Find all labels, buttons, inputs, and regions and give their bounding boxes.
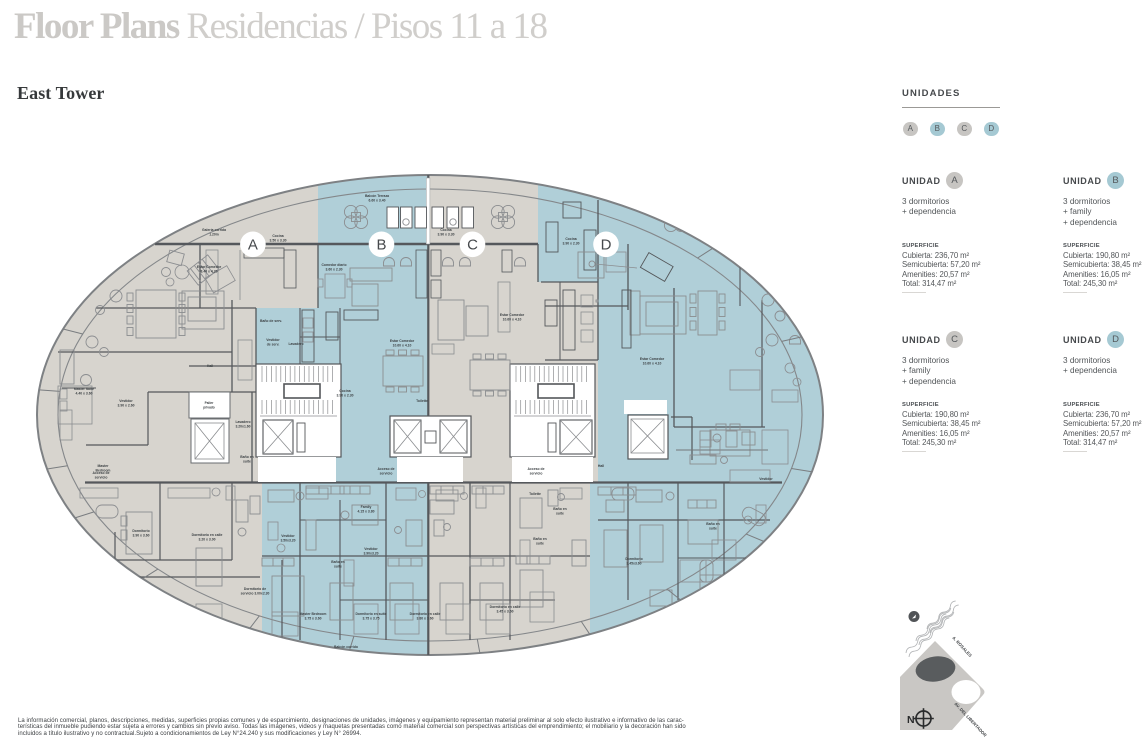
svg-text:Family: Family (361, 505, 372, 509)
svg-text:Baño en: Baño en (240, 455, 253, 459)
svg-text:10.60 x 4.10: 10.60 x 4.10 (643, 362, 662, 366)
svg-text:Baño en: Baño en (533, 537, 546, 541)
svg-text:servicio 3.00x2.30: servicio 3.00x2.30 (241, 592, 270, 596)
svg-text:3.20 x 3.00: 3.20 x 3.00 (199, 538, 216, 542)
svg-text:Galería corrida: Galería corrida (202, 228, 226, 232)
svg-text:de serv.: de serv. (267, 343, 280, 347)
svg-text:Vestidor: Vestidor (281, 534, 295, 538)
svg-text:3.90 x 3.30: 3.90 x 3.30 (438, 233, 455, 237)
svg-text:Toilette: Toilette (416, 399, 428, 403)
svg-text:Dormitorio: Dormitorio (132, 529, 149, 533)
svg-text:1.20m: 1.20m (209, 233, 219, 237)
svg-text:3.90 x 3.60: 3.90 x 3.60 (133, 534, 150, 538)
svg-text:Dormitorio: Dormitorio (625, 557, 642, 561)
svg-text:N: N (907, 714, 915, 726)
svg-text:D: D (601, 237, 612, 254)
svg-text:servicio: servicio (530, 472, 543, 476)
svg-text:Baño en: Baño en (331, 560, 344, 564)
svg-text:8.40 x 4.20: 8.40 x 4.20 (201, 270, 218, 274)
svg-text:Master: Master (98, 464, 110, 468)
svg-text:3.45 x 3.60: 3.45 x 3.60 (497, 610, 514, 614)
svg-text:A: A (248, 237, 258, 254)
svg-text:Comedor diario: Comedor diario (753, 260, 778, 264)
svg-text:Master Suite: Master Suite (74, 387, 94, 391)
svg-text:Cocina: Cocina (565, 237, 576, 241)
svg-text:suite: suite (556, 512, 564, 516)
svg-text:Master Bedroom: Master Bedroom (300, 612, 327, 616)
svg-text:Cocina: Cocina (339, 389, 350, 393)
svg-text:C: C (467, 237, 478, 254)
svg-text:Baño en: Baño en (706, 522, 719, 526)
svg-text:Baño en: Baño en (553, 507, 566, 511)
svg-text:Dormitorio en suite: Dormitorio en suite (355, 612, 386, 616)
svg-text:3.50x3.20: 3.50x3.20 (280, 539, 295, 543)
svg-text:Estar Comedor: Estar Comedor (500, 313, 525, 317)
svg-text:suite: suite (243, 460, 251, 464)
svg-text:4.15 x 3.80: 4.15 x 3.80 (358, 510, 375, 514)
svg-text:3.75 x 3.75: 3.75 x 3.75 (363, 617, 380, 621)
svg-text:3.90 x 2.60: 3.90 x 2.60 (118, 404, 135, 408)
svg-text:Lavadero: Lavadero (288, 342, 303, 346)
svg-text:3.90 x 2.30: 3.90 x 2.30 (563, 242, 580, 246)
svg-text:Vestidor: Vestidor (759, 477, 773, 481)
svg-text:3.90x3.20: 3.90x3.20 (363, 552, 378, 556)
svg-text:suite: suite (334, 565, 342, 569)
svg-text:Vestidor: Vestidor (364, 547, 378, 551)
svg-text:suite: suite (709, 527, 717, 531)
svg-text:Estar Comedor: Estar Comedor (197, 265, 222, 269)
svg-text:Estar Comedor: Estar Comedor (640, 357, 665, 361)
svg-text:Vestidor: Vestidor (119, 399, 133, 403)
svg-text:3.80 x 3.60: 3.80 x 3.60 (417, 617, 434, 621)
svg-text:3.20x1.60: 3.20x1.60 (235, 425, 250, 429)
svg-text:Vestidor: Vestidor (266, 338, 280, 342)
svg-text:3.90 x 2.30: 3.90 x 2.30 (337, 394, 354, 398)
svg-text:Lavadero: Lavadero (235, 420, 250, 424)
svg-text:Dormitorio en calle: Dormitorio en calle (410, 612, 441, 616)
svg-text:3.50 x 3.30: 3.50 x 3.30 (270, 239, 287, 243)
svg-text:Acceso de: Acceso de (528, 467, 545, 471)
svg-text:3.75 x 3.60: 3.75 x 3.60 (305, 617, 322, 621)
svg-text:B: B (376, 237, 386, 254)
svg-text:Cocina: Cocina (272, 234, 283, 238)
svg-text:A. ROSALES: A. ROSALES (951, 635, 973, 658)
svg-text:Estar Comedor: Estar Comedor (390, 339, 415, 343)
svg-text:Dormitorio de: Dormitorio de (244, 587, 266, 591)
svg-text:Balcón Terraza: Balcón Terraza (365, 194, 389, 198)
svg-text:Acceso de: Acceso de (93, 471, 110, 475)
svg-text:Baño de serv.: Baño de serv. (260, 319, 282, 323)
svg-text:Cocina: Cocina (440, 228, 451, 232)
svg-text:Comedor diario: Comedor diario (321, 263, 346, 267)
svg-text:Hall: Hall (598, 464, 604, 468)
svg-text:Dormitorio en calle: Dormitorio en calle (490, 605, 521, 609)
svg-text:servicio: servicio (95, 476, 108, 480)
svg-text:Dormitorio en calle: Dormitorio en calle (192, 533, 223, 537)
svg-text:3.45x3.60: 3.45x3.60 (626, 562, 641, 566)
svg-text:Palier: Palier (205, 401, 214, 405)
svg-text:6.60 x 3.40: 6.60 x 3.40 (369, 199, 386, 203)
svg-text:Acceso de: Acceso de (378, 467, 395, 471)
svg-text:Hall: Hall (207, 364, 213, 368)
svg-text:servicio: servicio (380, 472, 393, 476)
svg-text:10.60 x 4.10: 10.60 x 4.10 (393, 344, 412, 348)
svg-text:10.60 x 4.10: 10.60 x 4.10 (503, 318, 522, 322)
svg-text:privado: privado (203, 406, 215, 410)
svg-text:3.60 x 2.30: 3.60 x 2.30 (758, 265, 775, 269)
svg-text:3.60 x 2.30: 3.60 x 2.30 (326, 268, 343, 272)
svg-text:Toilette: Toilette (529, 492, 541, 496)
svg-text:suite: suite (536, 542, 544, 546)
svg-text:4.40 x 3.60: 4.40 x 3.60 (76, 392, 93, 396)
